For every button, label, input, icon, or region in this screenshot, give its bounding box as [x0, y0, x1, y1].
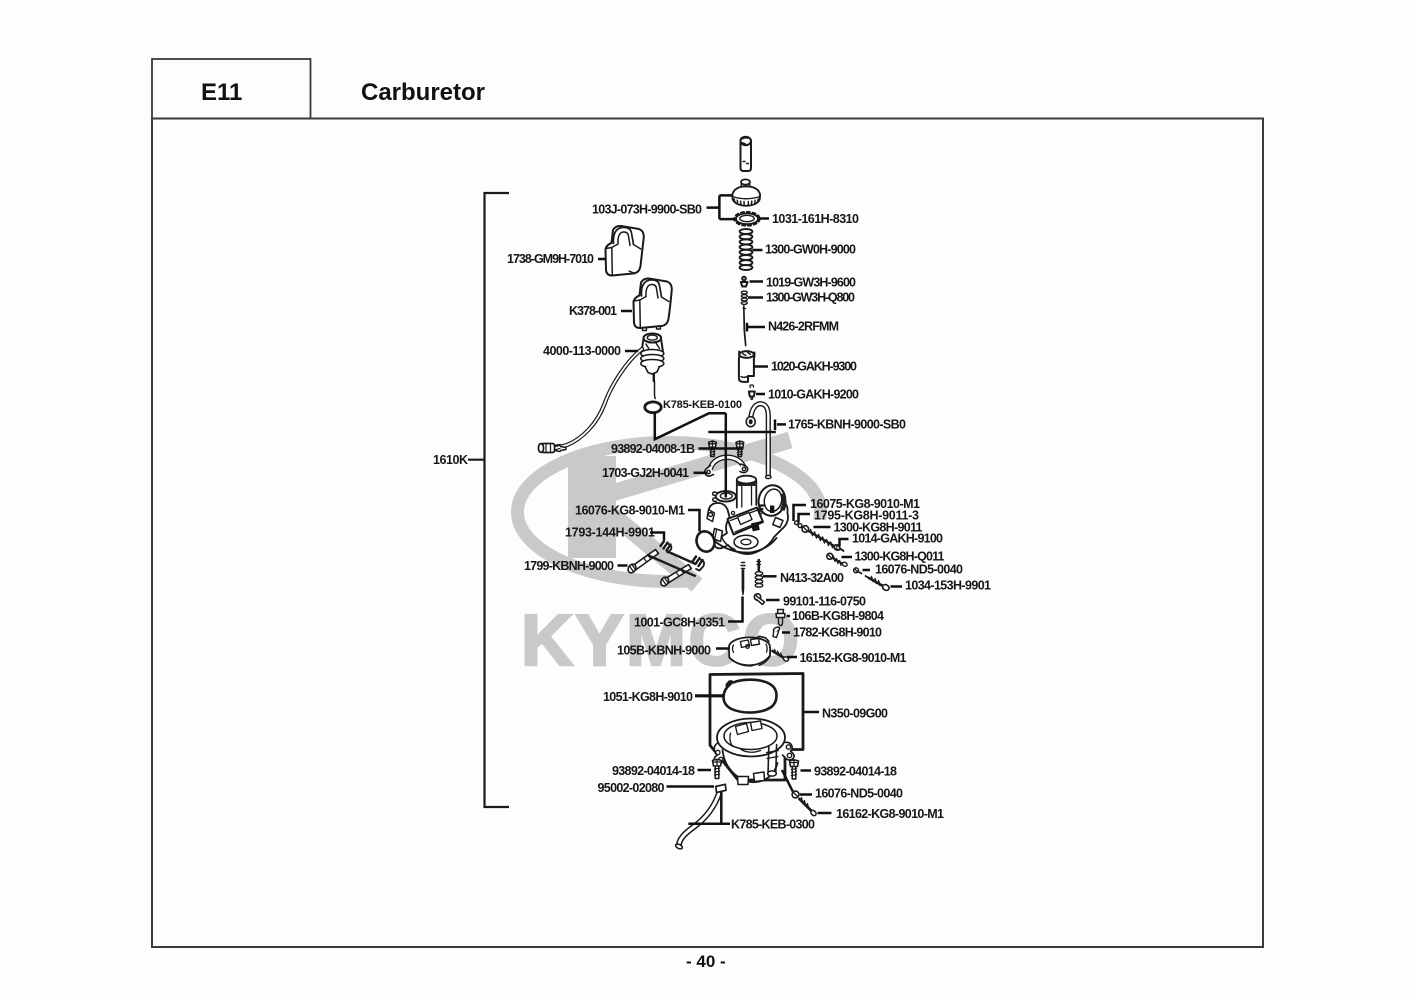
svg-text:1703-GJ2H-0041: 1703-GJ2H-0041 [602, 466, 689, 480]
svg-text:105B-KBNH-9000: 105B-KBNH-9000 [617, 644, 711, 658]
svg-text:N350-09G00: N350-09G00 [822, 707, 888, 721]
svg-text:93892-04014-18: 93892-04014-18 [612, 764, 695, 778]
svg-text:1782-KG8H-9010: 1782-KG8H-9010 [793, 626, 882, 640]
svg-text:93892-04008-1B: 93892-04008-1B [611, 442, 695, 456]
svg-text:95002-02080: 95002-02080 [598, 781, 665, 795]
svg-text:1300-KG8H-Q011: 1300-KG8H-Q011 [855, 550, 945, 564]
svg-text:1010-GAKH-9200: 1010-GAKH-9200 [768, 388, 859, 402]
svg-text:1738-GM9H-7010: 1738-GM9H-7010 [507, 252, 594, 266]
svg-text:1300-GW3H-Q800: 1300-GW3H-Q800 [766, 291, 855, 305]
svg-text:K785-KEB-0300: K785-KEB-0300 [731, 818, 815, 832]
svg-text:16152-KG8-9010-M1: 16152-KG8-9010-M1 [800, 651, 907, 665]
svg-text:106B-KG8H-9804: 106B-KG8H-9804 [792, 609, 884, 623]
svg-text:K785-KEB-0100: K785-KEB-0100 [663, 399, 742, 411]
svg-text:16162-KG8-9010-M1: 16162-KG8-9010-M1 [836, 807, 944, 821]
svg-text:Carburetor: Carburetor [361, 79, 485, 106]
svg-text:16076-ND5-0040: 16076-ND5-0040 [875, 563, 963, 577]
svg-text:K378-001: K378-001 [569, 304, 617, 318]
svg-text:1019-GW3H-9600: 1019-GW3H-9600 [766, 276, 856, 290]
svg-text:1765-KBNH-9000-SB0: 1765-KBNH-9000-SB0 [788, 418, 906, 432]
svg-text:N413-32A00: N413-32A00 [780, 571, 844, 585]
svg-text:1793-144H-9901: 1793-144H-9901 [565, 526, 655, 540]
svg-text:1031-161H-8310: 1031-161H-8310 [772, 212, 859, 226]
svg-text:4000-113-0000: 4000-113-0000 [543, 344, 621, 358]
svg-text:1610K: 1610K [433, 453, 468, 467]
svg-text:99101-116-0750: 99101-116-0750 [783, 595, 866, 609]
svg-text:1014-GAKH-9100: 1014-GAKH-9100 [852, 532, 943, 546]
svg-text:1799-KBNH-9000: 1799-KBNH-9000 [524, 559, 614, 573]
svg-text:- 40 -: - 40 - [686, 952, 726, 971]
svg-text:N426-2RFMM: N426-2RFMM [768, 320, 839, 334]
svg-text:16076-KG8-9010-M1: 16076-KG8-9010-M1 [575, 504, 685, 518]
svg-text:1034-153H-9901: 1034-153H-9901 [905, 579, 991, 593]
svg-text:E11: E11 [201, 79, 242, 106]
svg-text:16076-ND5-0040: 16076-ND5-0040 [815, 787, 903, 801]
svg-text:1051-KG8H-9010: 1051-KG8H-9010 [603, 690, 693, 704]
svg-text:1300-GW0H-9000: 1300-GW0H-9000 [765, 243, 856, 257]
svg-text:1020-GAKH-9300: 1020-GAKH-9300 [771, 360, 857, 374]
svg-text:1001-GC8H-0351: 1001-GC8H-0351 [634, 616, 725, 630]
svg-text:103J-073H-9900-SB0: 103J-073H-9900-SB0 [592, 203, 702, 217]
svg-text:93892-04014-18: 93892-04014-18 [814, 765, 897, 779]
